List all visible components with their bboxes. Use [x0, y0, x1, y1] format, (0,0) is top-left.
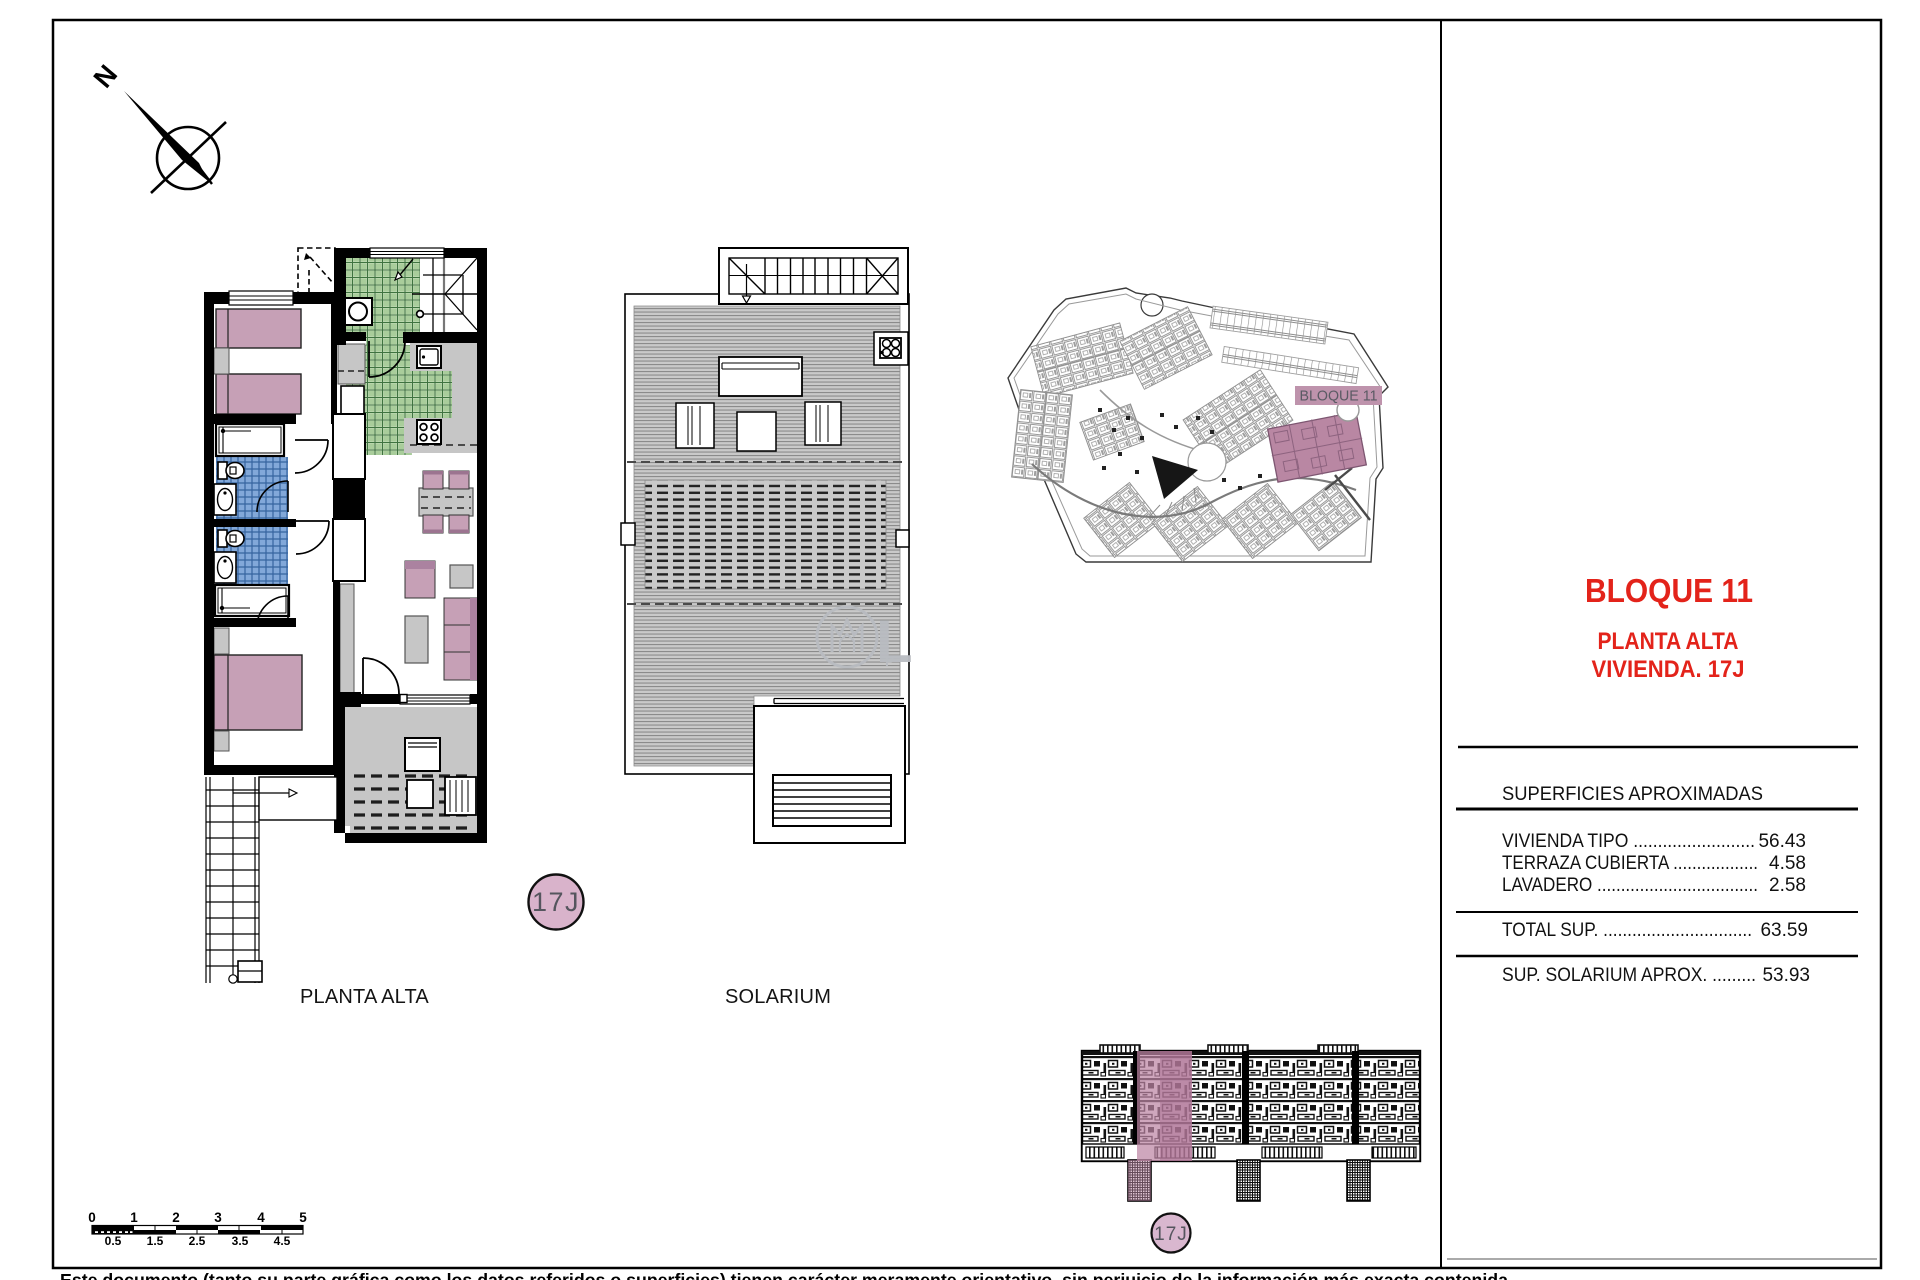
svg-text:SUP. SOLARIUM APROX. .........: SUP. SOLARIUM APROX. ......... — [1502, 965, 1756, 986]
svg-text:PLANTA ALTA: PLANTA ALTA — [1598, 628, 1739, 655]
svg-text:2.5: 2.5 — [189, 1234, 206, 1248]
svg-text:BLOQUE 11: BLOQUE 11 — [1585, 572, 1753, 609]
svg-text:63.59: 63.59 — [1760, 920, 1808, 941]
svg-text:P: P — [885, 653, 894, 669]
svg-text:TERRAZA CUBIERTA .............: TERRAZA CUBIERTA .................. — [1502, 853, 1758, 874]
svg-text:0: 0 — [88, 1210, 96, 1225]
svg-text:PLANTA ALTA: PLANTA ALTA — [300, 986, 429, 1008]
svg-text:2.58: 2.58 — [1769, 875, 1806, 896]
svg-text:53.93: 53.93 — [1762, 965, 1810, 986]
svg-text:17J: 17J — [532, 887, 580, 917]
svg-text:4.58: 4.58 — [1769, 853, 1806, 874]
svg-text:Este documento (tanto su parte: Este documento (tanto su parte gráfica c… — [60, 1270, 1508, 1280]
svg-text:17J: 17J — [1154, 1224, 1188, 1245]
svg-text:VIVIENDA TIPO ................: VIVIENDA TIPO ......................... — [1502, 831, 1755, 852]
svg-text:TOTAL SUP. ...................: TOTAL SUP. .............................… — [1502, 920, 1752, 941]
svg-text:5: 5 — [299, 1210, 307, 1225]
svg-text:4: 4 — [257, 1210, 265, 1225]
svg-text:3: 3 — [214, 1210, 222, 1225]
svg-text:4.5: 4.5 — [274, 1234, 291, 1248]
svg-text:SOLARIUM: SOLARIUM — [725, 986, 831, 1008]
svg-text:1.5: 1.5 — [147, 1234, 164, 1248]
svg-text:LAVADERO .....................: LAVADERO ...............................… — [1502, 875, 1758, 896]
svg-text:3.5: 3.5 — [232, 1234, 249, 1248]
svg-text:2: 2 — [172, 1210, 180, 1225]
svg-text:BLOQUE 11: BLOQUE 11 — [1300, 388, 1378, 405]
svg-text:1: 1 — [130, 1210, 138, 1225]
svg-text:56.43: 56.43 — [1758, 831, 1806, 852]
svg-text:0.5: 0.5 — [105, 1234, 122, 1248]
svg-text:SUPERFICIES APROXIMADAS: SUPERFICIES APROXIMADAS — [1502, 783, 1763, 805]
svg-text:VIVIENDA. 17J: VIVIENDA. 17J — [1592, 656, 1745, 683]
